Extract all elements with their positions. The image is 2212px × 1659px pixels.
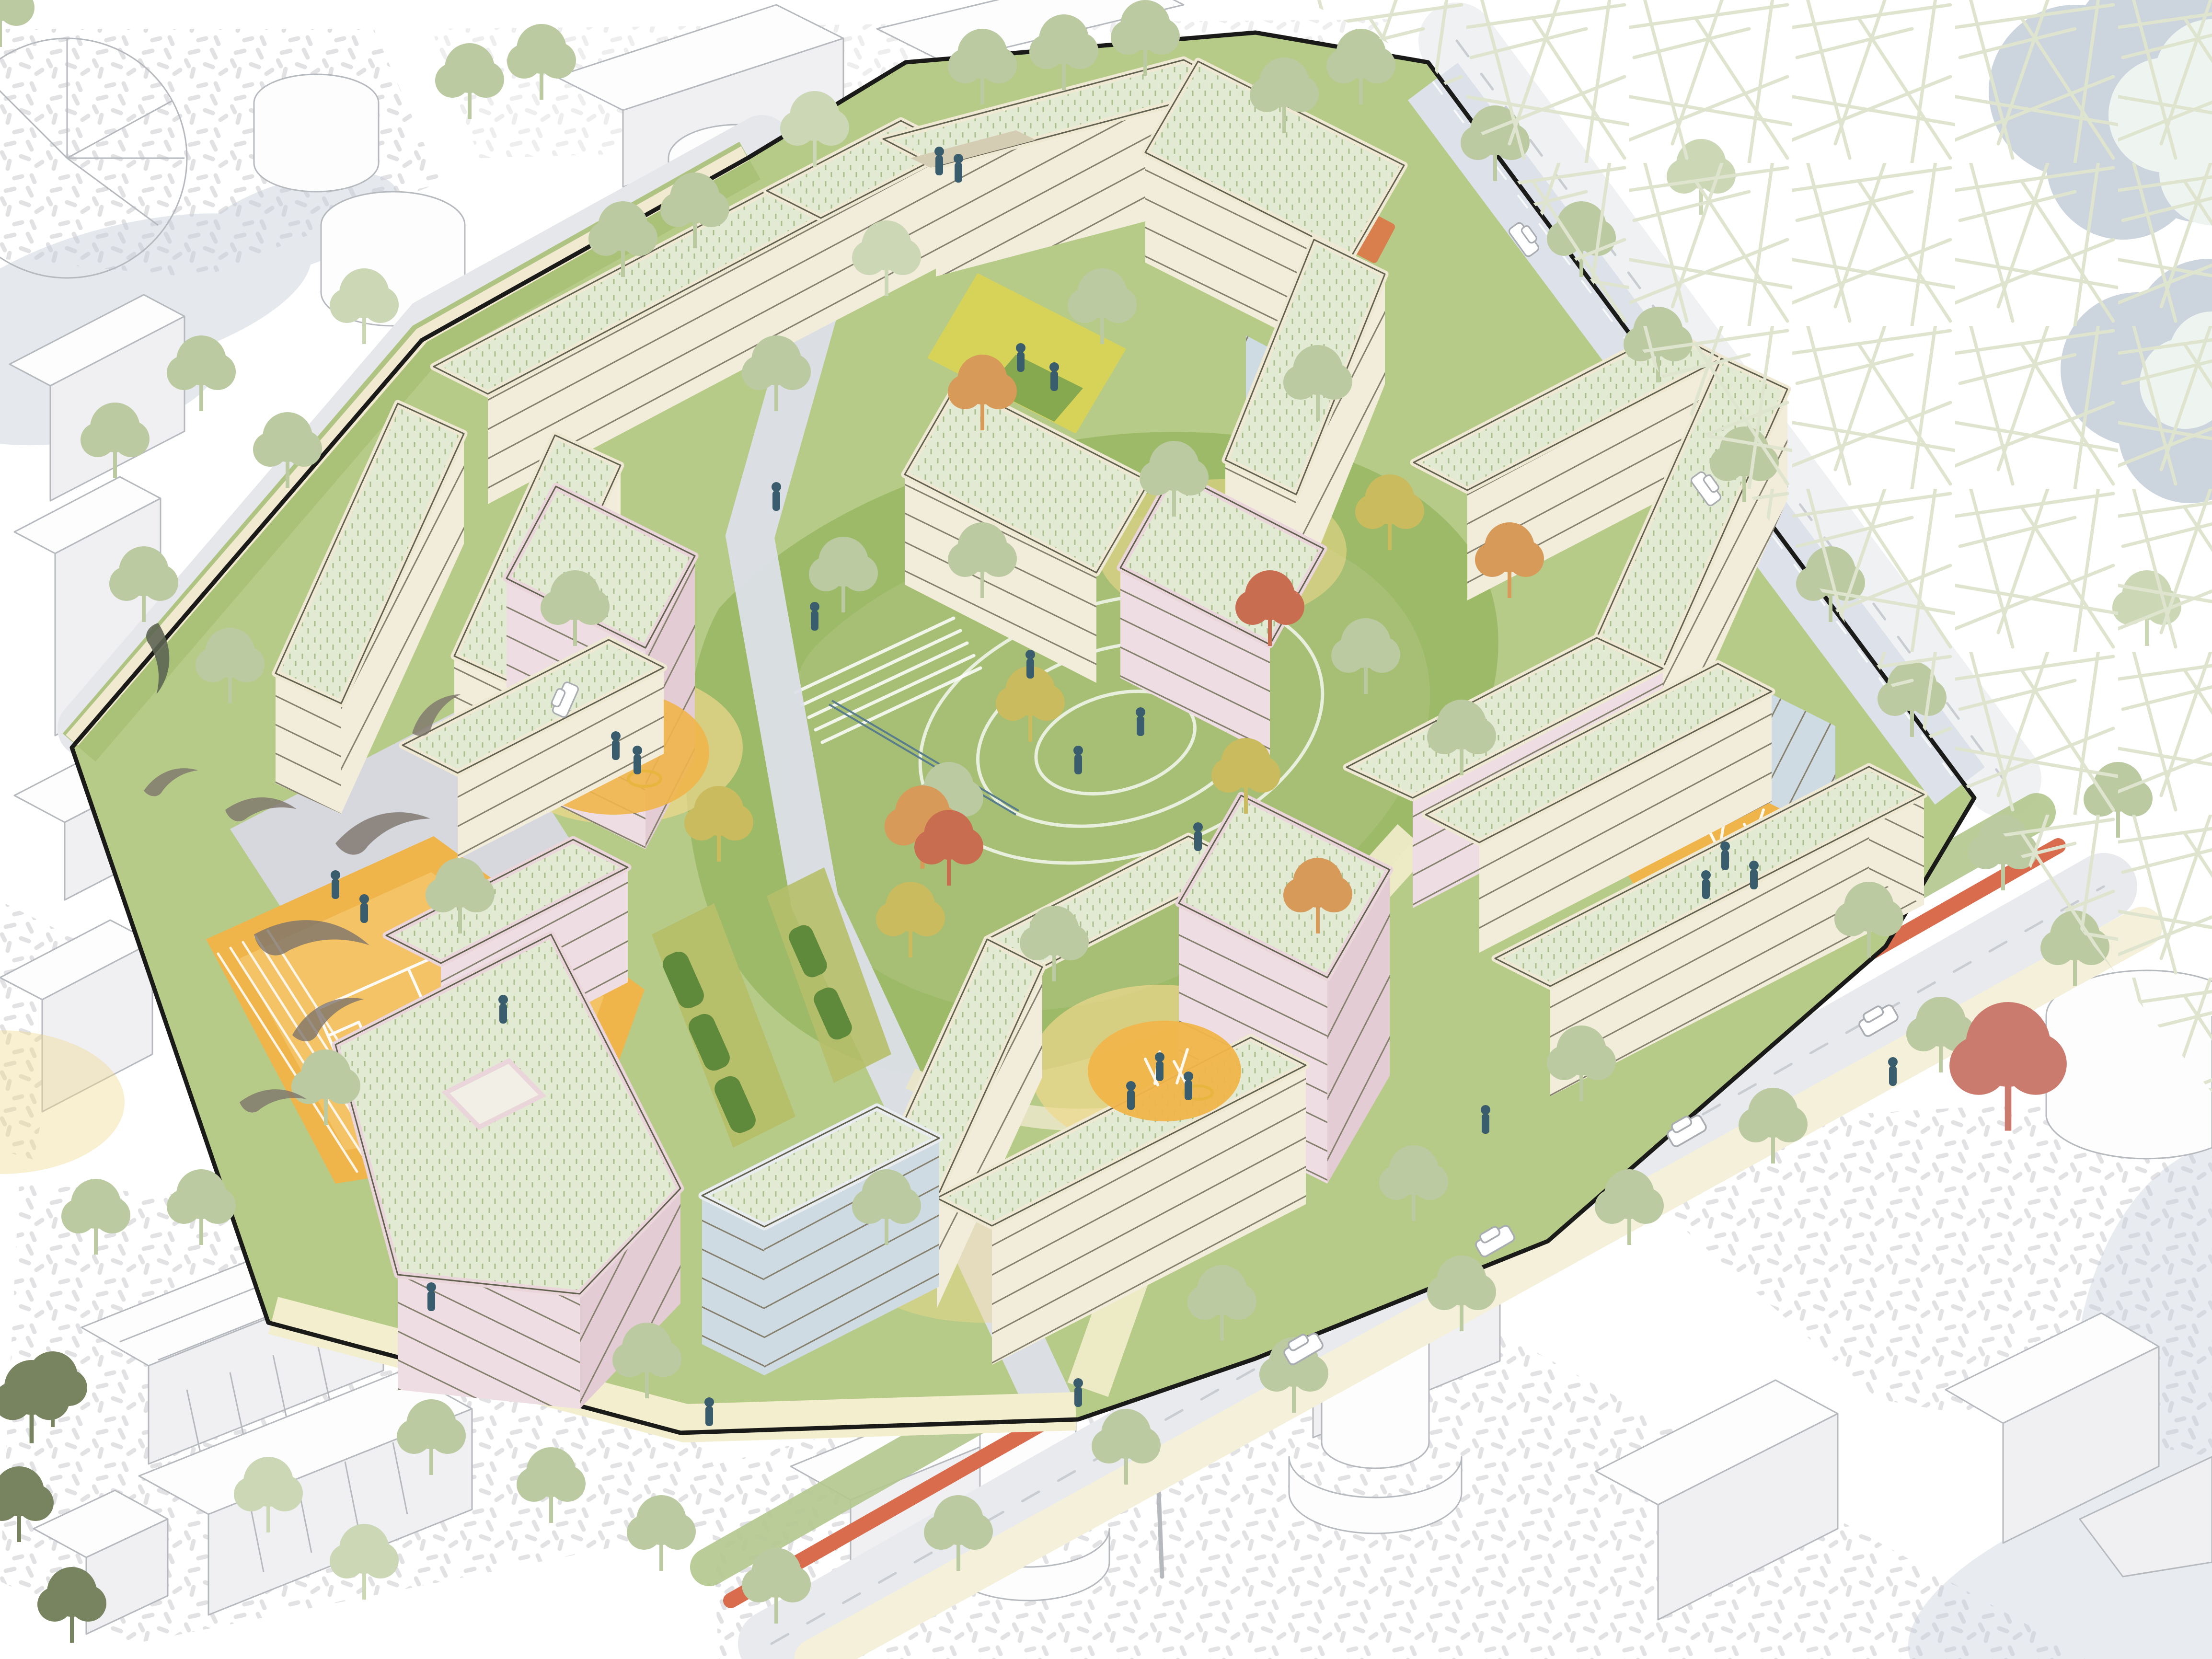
masterplan-svg: [0, 0, 2212, 1659]
masterplan-illustration: [0, 0, 2212, 1659]
playground-d: [1088, 1021, 1241, 1121]
